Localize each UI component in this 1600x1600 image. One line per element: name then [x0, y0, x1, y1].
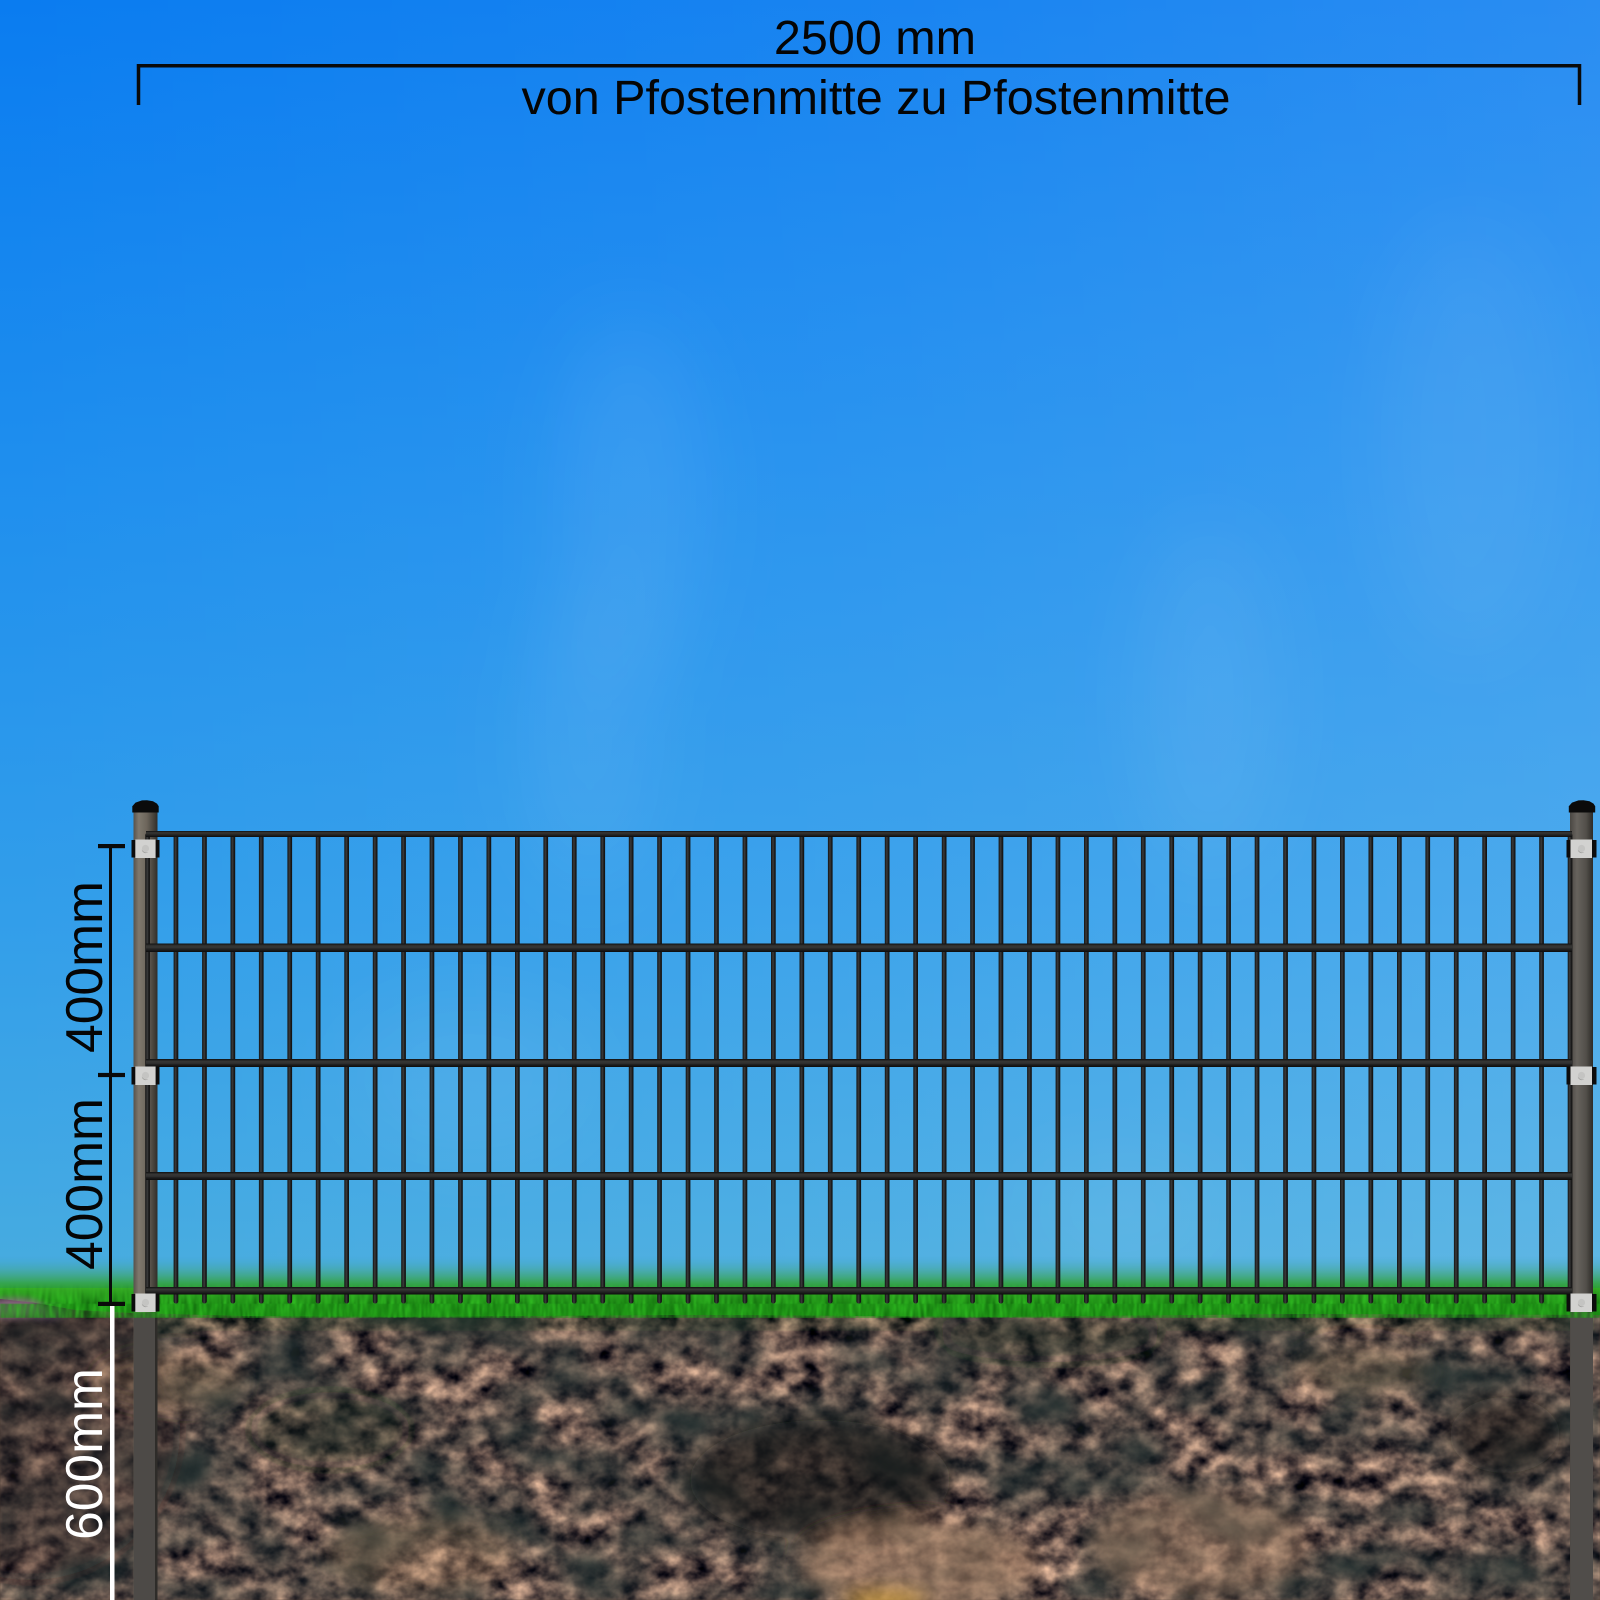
svg-text:600mm: 600mm: [55, 1368, 113, 1540]
svg-text:400mm: 400mm: [55, 1098, 113, 1270]
svg-text:400mm: 400mm: [55, 881, 113, 1053]
svg-text:2500 mm: 2500 mm: [774, 11, 976, 65]
svg-text:von Pfostenmitte zu Pfostenmit: von Pfostenmitte zu Pfostenmitte: [522, 71, 1231, 125]
